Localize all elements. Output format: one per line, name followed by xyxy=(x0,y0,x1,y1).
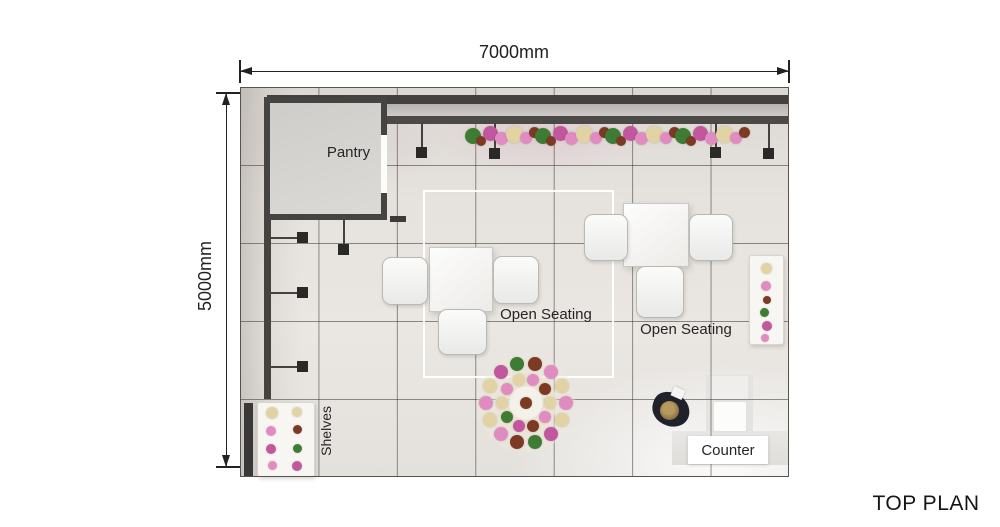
floor-plan: Pantry Open Seating Open Seating Shelves xyxy=(240,87,789,477)
left-dimension-line xyxy=(226,93,227,467)
floor-plan-page: 7000mm 5000mm Pantry xyxy=(0,0,1000,527)
page-title: TOP PLAN xyxy=(846,492,1000,516)
top-dimension-label: 7000mm xyxy=(434,42,594,63)
top-dimension-line xyxy=(240,71,789,72)
left-dimension-tick-top xyxy=(216,92,240,94)
plan-border xyxy=(240,87,789,477)
top-dimension-tick-left xyxy=(239,60,241,83)
left-dimension-tick-bottom xyxy=(216,466,240,468)
left-dimension-label: 5000mm xyxy=(195,241,216,311)
top-dimension-tick-right xyxy=(788,60,790,83)
